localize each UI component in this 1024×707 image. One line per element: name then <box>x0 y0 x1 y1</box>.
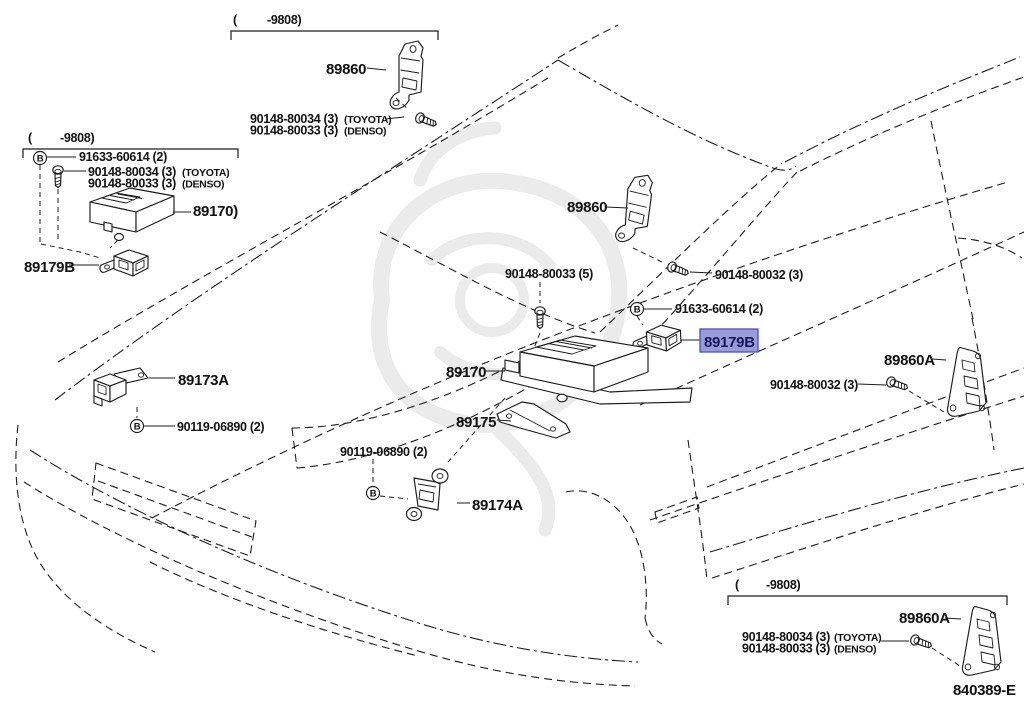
screw-icon <box>885 376 909 393</box>
group-front-sensor-early: ( -9808) 89860 90148-80034 (3) (TOYOTA) … <box>231 13 438 138</box>
callout-bolt-left[interactable]: 91633-60614 (2) <box>79 150 167 164</box>
bracket-open-top: ( <box>233 13 238 27</box>
bracket-open-bottom-right: ( <box>735 578 740 592</box>
ecu-drawing-left <box>90 188 174 241</box>
callout-89860a-bottom[interactable]: 89860A <box>899 610 950 627</box>
date-range-top: -9808) <box>267 13 301 27</box>
group-front-center-sensor: 90119-06890 (2) B 89174A <box>340 445 523 521</box>
screw-icon <box>53 166 63 188</box>
maker-toyota-top: (TOYOTA) <box>344 114 391 126</box>
parts-diagram-page: ( -9808) 89860 90148-80034 (3) (TOYOTA) … <box>0 0 1024 707</box>
maker-denso-br: (DENSO) <box>834 644 876 656</box>
screw-icon <box>666 261 690 279</box>
callout-screw-center[interactable]: 90148-80033 (5) <box>505 267 593 281</box>
sensor-89860a-drawing-right <box>947 348 986 417</box>
date-range-bottom-right: -9808) <box>766 578 800 592</box>
sensor-89174a-drawing <box>407 469 449 521</box>
b-symbol-label: B <box>370 489 377 500</box>
b-symbol-label: B <box>134 422 141 433</box>
front-sensor-drawing-top <box>390 41 423 109</box>
group-front-left-sensor: 89173A B 90119-06890 (2) <box>94 368 264 434</box>
figure-code: 840389-E <box>953 682 1016 699</box>
bracket-open-left: ( <box>28 131 33 145</box>
maker-toyota-br: (TOYOTA) <box>834 632 881 644</box>
group-left-early-ecu: ( -9808) B 91633-60614 (2) 90148-80034 (… <box>23 131 238 276</box>
callout-screw-cowl[interactable]: 90148-80032 (3) <box>715 268 803 282</box>
group-bottom-right-early: ( -9808) 89860A 90148-80034 (3) (TOYOTA)… <box>728 578 1007 675</box>
callout-screw-br-denso[interactable]: 90148-80033 (3) <box>742 642 830 656</box>
callout-89860-cowl[interactable]: 89860 <box>567 199 607 216</box>
maker-toyota-left: (TOYOTA) <box>182 167 229 179</box>
side-sensor-drawing-left <box>100 250 148 276</box>
front-sensor-drawing-cowl <box>615 173 653 243</box>
screw-icon <box>414 112 438 130</box>
sensor-89860a-drawing-bottom <box>962 607 1001 676</box>
callout-bolt-center[interactable]: 91633-60614 (2) <box>675 302 763 316</box>
callout-nut-front-center[interactable]: 90119-06890 (2) <box>340 445 427 459</box>
callout-89179b-left[interactable]: 89179B <box>24 259 75 276</box>
callout-89170-center[interactable]: 89170 <box>446 364 486 381</box>
callout-screw-top-denso[interactable]: 90148-80033 (3) <box>250 124 338 138</box>
screw-icon <box>535 307 545 329</box>
callout-89174a[interactable]: 89174A <box>472 497 523 514</box>
callout-89173a[interactable]: 89173A <box>178 372 229 389</box>
screw-icon <box>909 634 933 651</box>
b-symbol-label: B <box>634 305 641 316</box>
callout-nut-front-left[interactable]: 90119-06890 (2) <box>177 420 264 434</box>
airbag-sensor-parts-diagram: ( -9808) 89860 90148-80034 (3) (TOYOTA) … <box>0 0 1024 707</box>
callout-89175[interactable]: 89175 <box>456 414 496 431</box>
b-symbol-label: B <box>37 154 44 165</box>
callout-89860a-right[interactable]: 89860A <box>884 352 935 369</box>
callout-89179b-selected[interactable]: 89179B <box>704 334 755 351</box>
sensor-89173a-drawing <box>94 368 148 406</box>
maker-denso-top: (DENSO) <box>344 126 386 138</box>
callout-89860-top[interactable]: 89860 <box>326 61 366 78</box>
group-right-sensor: 89860A 90148-80032 (3) <box>770 348 986 417</box>
maker-denso-left: (DENSO) <box>182 179 224 191</box>
callout-screw-right[interactable]: 90148-80032 (3) <box>770 378 858 392</box>
date-range-left: -9808) <box>60 131 94 145</box>
callout-89170-left[interactable]: 89170) <box>193 203 238 220</box>
